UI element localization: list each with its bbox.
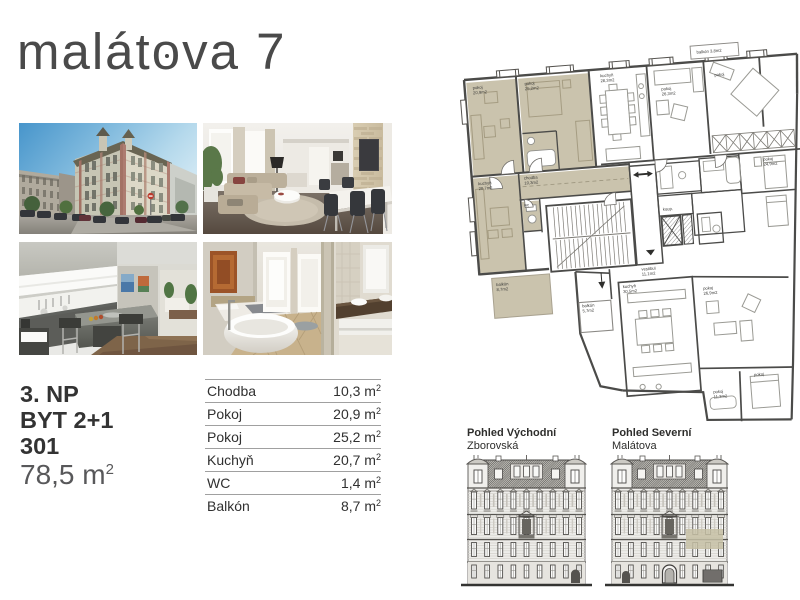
svg-text:26,9m2: 26,9m2 [703, 290, 718, 296]
svg-text:pokoj: pokoj [754, 371, 764, 377]
svg-text:koup.: koup. [663, 206, 674, 212]
svg-text:28,3m2: 28,3m2 [600, 77, 615, 83]
svg-text:5,7m2: 5,7m2 [582, 307, 595, 313]
svg-text:wc: wc [524, 202, 530, 207]
svg-text:26,3m2: 26,3m2 [662, 90, 677, 96]
svg-text:11,1m2: 11,1m2 [642, 271, 657, 277]
svg-text:pokoj: pokoj [714, 72, 724, 78]
svg-text:8,7m2: 8,7m2 [496, 286, 509, 292]
